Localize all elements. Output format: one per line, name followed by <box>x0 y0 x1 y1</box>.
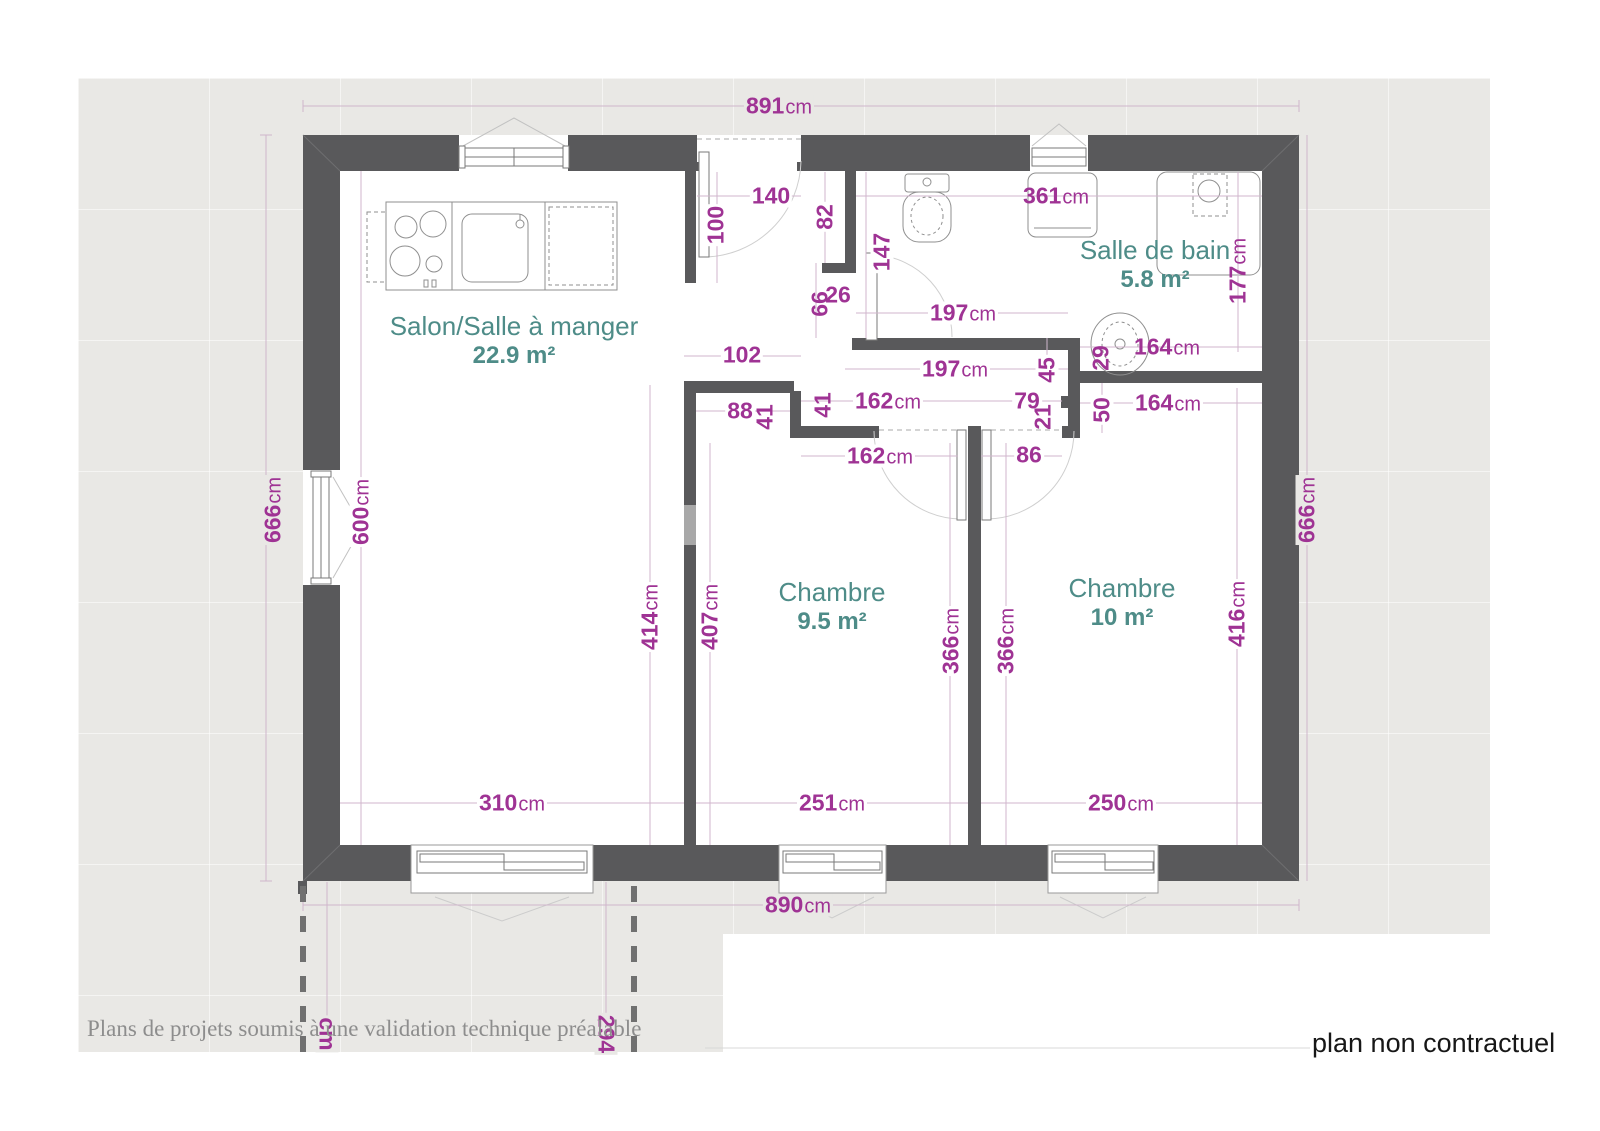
window-chambre2-bottom <box>1048 845 1158 918</box>
window-chambre1-bottom <box>779 845 886 918</box>
window-kitchen <box>459 118 569 171</box>
window-salon-bottom <box>411 845 593 921</box>
window-bathroom <box>1030 124 1088 171</box>
footer-disclaimer: Plans de projets soumis à une validation… <box>87 1016 647 1042</box>
floorplan-drawing <box>0 0 1600 1131</box>
footer-non-contractual: plan non contractuel <box>1312 1028 1555 1059</box>
floorplan-page: 891cm890cm666cm666cm600cm140100821476626… <box>0 0 1600 1131</box>
